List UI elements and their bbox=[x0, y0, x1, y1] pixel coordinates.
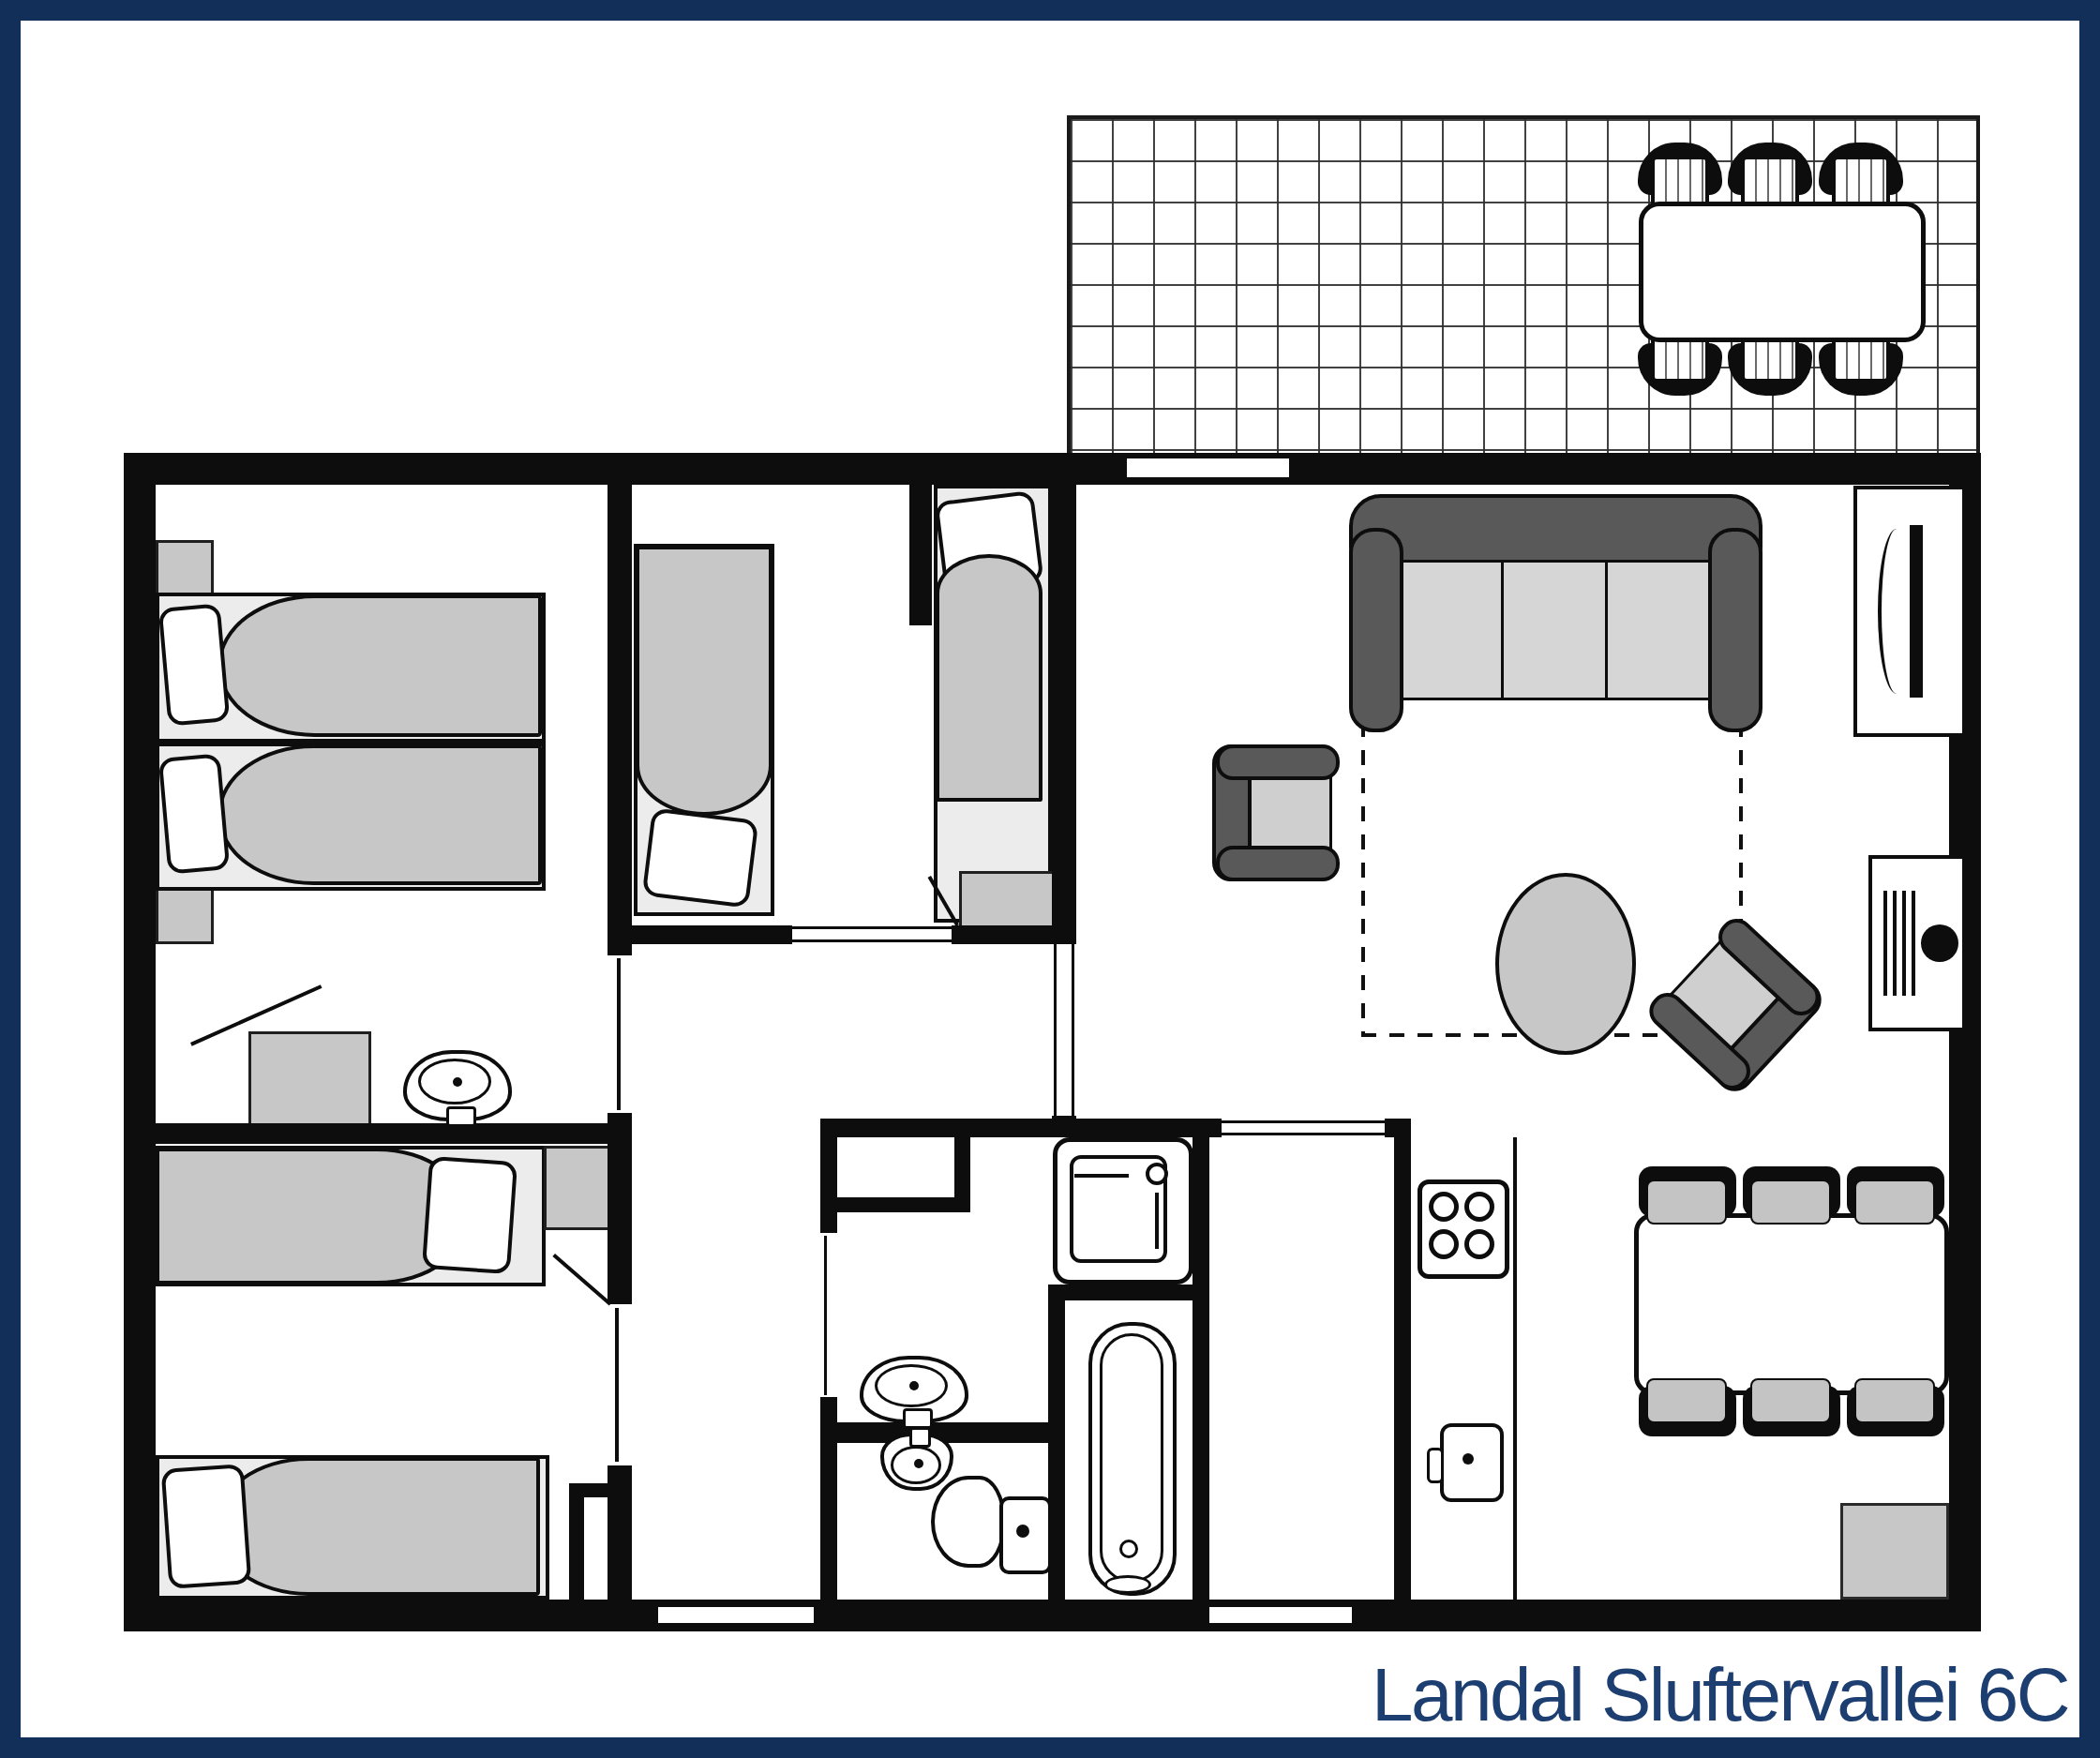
terrace-chair bbox=[1638, 143, 1722, 208]
stove-burner bbox=[1464, 1192, 1494, 1222]
wall-middle-bedroom-bottom-left bbox=[620, 925, 792, 944]
sofa-cushions bbox=[1400, 560, 1712, 700]
wall-exterior-left bbox=[124, 453, 156, 1631]
door-frame-bathroom bbox=[824, 1236, 827, 1395]
wall-closet-cap bbox=[569, 1483, 612, 1497]
dining-chair bbox=[1847, 1386, 1944, 1436]
wall-bedroom1-right-upper bbox=[607, 485, 632, 955]
sink-tap bbox=[909, 1427, 931, 1448]
wall-kitchen-left bbox=[1394, 1137, 1411, 1600]
stove-flue-dot bbox=[1921, 924, 1958, 962]
chair-seat bbox=[1646, 1180, 1727, 1225]
page-title: Landal Sluftervallei 6C bbox=[1372, 1652, 2068, 1738]
round-coffee-table bbox=[1495, 873, 1636, 1055]
door-frame-hallway bbox=[1222, 1120, 1385, 1123]
passage-frame-hall-living bbox=[1072, 943, 1074, 1116]
wall-bath-block-left-upper bbox=[820, 1137, 837, 1233]
bed-pillow bbox=[158, 603, 231, 726]
bed-duvet bbox=[636, 546, 772, 816]
grill-line bbox=[1902, 891, 1906, 996]
wall-exterior-bottom bbox=[124, 1600, 1981, 1631]
stove-burner bbox=[1429, 1229, 1459, 1259]
stove-burner bbox=[1464, 1229, 1494, 1259]
armchair-seat bbox=[1246, 773, 1332, 853]
fireplace-stove bbox=[1868, 855, 1966, 1031]
bed-duvet bbox=[217, 594, 542, 737]
single-bed bbox=[156, 1146, 546, 1286]
washbasin bbox=[860, 1356, 968, 1423]
door-frame-middle-bedroom bbox=[792, 939, 952, 942]
sofa bbox=[1349, 494, 1762, 725]
armchair bbox=[1212, 744, 1343, 881]
bed-duvet bbox=[936, 554, 1042, 802]
armchair-arm bbox=[1216, 744, 1340, 780]
foot-chest bbox=[959, 871, 1057, 928]
washbasin-small bbox=[880, 1433, 953, 1491]
dining-table bbox=[1634, 1213, 1949, 1395]
wall-closet-stub bbox=[569, 1497, 584, 1600]
grill-line bbox=[1893, 891, 1897, 996]
toilet-bowl bbox=[931, 1476, 1006, 1568]
single-bed bbox=[156, 743, 546, 891]
chair-seat bbox=[1854, 1378, 1935, 1423]
bed-duvet bbox=[156, 1148, 471, 1285]
armchair-arm bbox=[1216, 846, 1340, 881]
single-bed bbox=[156, 1455, 549, 1600]
shower-head bbox=[1146, 1163, 1168, 1185]
door-frame-hallway bbox=[1222, 1133, 1385, 1135]
dining-chair bbox=[1639, 1386, 1736, 1436]
chair-seat bbox=[1854, 1180, 1935, 1225]
wall-shower-bottom bbox=[1048, 1285, 1192, 1300]
chair-seat bbox=[1750, 1378, 1831, 1423]
sink-tap bbox=[903, 1408, 933, 1429]
corner-cupboard bbox=[1840, 1503, 1949, 1600]
sofa-arm bbox=[1349, 528, 1403, 732]
door-frame-bedroom1 bbox=[617, 958, 621, 1110]
wall-living-left-upper bbox=[1052, 485, 1076, 940]
shower-rail bbox=[1155, 1193, 1159, 1249]
passage-frame-hall-living bbox=[1054, 943, 1057, 1116]
terrace-chair bbox=[1728, 143, 1812, 208]
rug-outline bbox=[1361, 722, 1365, 1037]
terrace-chair bbox=[1819, 143, 1903, 208]
kitchen-faucet bbox=[1427, 1448, 1444, 1483]
nightstand bbox=[544, 1146, 613, 1230]
dining-chair bbox=[1743, 1386, 1840, 1436]
wall-bedroom2-right-mid bbox=[607, 1113, 632, 1304]
bathtub-faucet bbox=[1104, 1575, 1151, 1594]
dining-chair bbox=[1847, 1166, 1944, 1217]
sink-drain bbox=[1462, 1453, 1474, 1465]
wall-niche-bottom bbox=[834, 1197, 970, 1212]
front-door-opening bbox=[658, 1607, 814, 1623]
bed-pillow bbox=[422, 1156, 517, 1274]
bed-pillow bbox=[642, 807, 759, 908]
chair-seat bbox=[1646, 1378, 1727, 1423]
wall-bath-column-right bbox=[1192, 1137, 1209, 1600]
tv-cabinet bbox=[1853, 486, 1966, 737]
wall-between-bedrooms-left bbox=[156, 1123, 607, 1144]
nightstand bbox=[156, 885, 214, 944]
wall-bath-block-top bbox=[820, 1119, 1222, 1137]
sink-tap bbox=[446, 1106, 476, 1127]
shower-shelf-line bbox=[1074, 1174, 1129, 1178]
door-frame-middle-bedroom bbox=[792, 926, 952, 929]
sofa-back bbox=[1349, 494, 1762, 565]
dining-chair bbox=[1743, 1166, 1840, 1217]
washbasin bbox=[403, 1050, 512, 1121]
bed-pillow bbox=[161, 1464, 252, 1589]
bathtub-drain bbox=[1119, 1540, 1138, 1558]
kitchen-counter-edge bbox=[1513, 1137, 1517, 1600]
sofa-arm bbox=[1708, 528, 1762, 732]
bed-pillow bbox=[158, 753, 231, 874]
door-leaf-bedroom2 bbox=[552, 1254, 611, 1306]
bed-duvet bbox=[217, 744, 542, 885]
tv-screen-curve bbox=[1878, 529, 1915, 694]
grill-line bbox=[1883, 891, 1887, 996]
nightstand bbox=[156, 540, 214, 600]
wall-middle-bedrooms-divider bbox=[909, 485, 932, 625]
single-bed bbox=[634, 544, 774, 916]
wall-exterior-top bbox=[124, 453, 1981, 485]
terrace-dining-table bbox=[1639, 202, 1926, 342]
single-bed bbox=[156, 593, 546, 743]
stove-burner bbox=[1429, 1192, 1459, 1222]
chair-seat bbox=[1750, 1180, 1831, 1225]
toilet-flush-button bbox=[1016, 1525, 1029, 1538]
floorplan-canvas: Landal Sluftervallei 6C bbox=[0, 0, 2100, 1758]
back-door-opening bbox=[1209, 1607, 1352, 1623]
dining-chair bbox=[1639, 1166, 1736, 1217]
stove bbox=[1417, 1180, 1509, 1279]
armchair-rotated bbox=[1640, 909, 1829, 1099]
wall-bath-block-top2 bbox=[1385, 1119, 1411, 1137]
single-bed bbox=[934, 485, 1052, 923]
cabinet bbox=[248, 1031, 371, 1127]
terrace-door-opening bbox=[1127, 458, 1289, 477]
grill-line bbox=[1912, 891, 1915, 996]
bed-duvet bbox=[214, 1457, 540, 1596]
door-frame-bedroom2 bbox=[615, 1308, 619, 1462]
